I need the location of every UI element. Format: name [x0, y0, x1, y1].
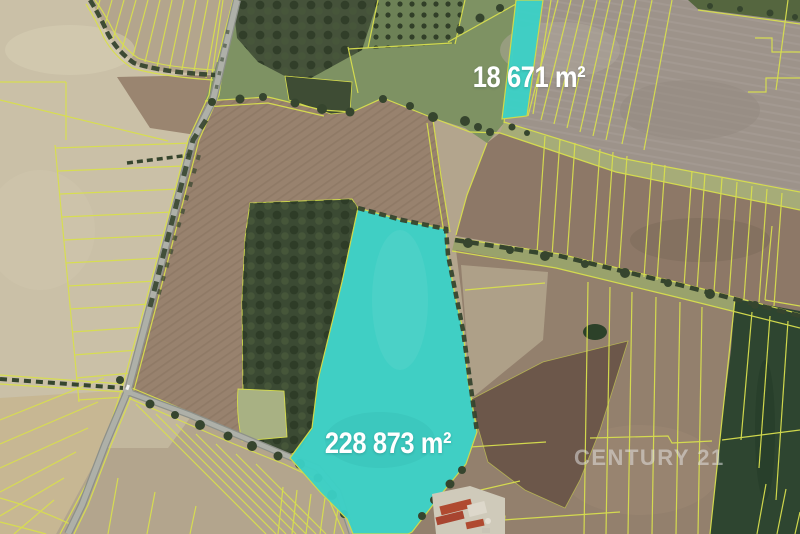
forest-clearing — [238, 389, 288, 441]
aerial-cadastral-map: 18 671 m² 228 873 m² CENTURY 21 — [0, 0, 800, 534]
map-image — [0, 0, 800, 534]
